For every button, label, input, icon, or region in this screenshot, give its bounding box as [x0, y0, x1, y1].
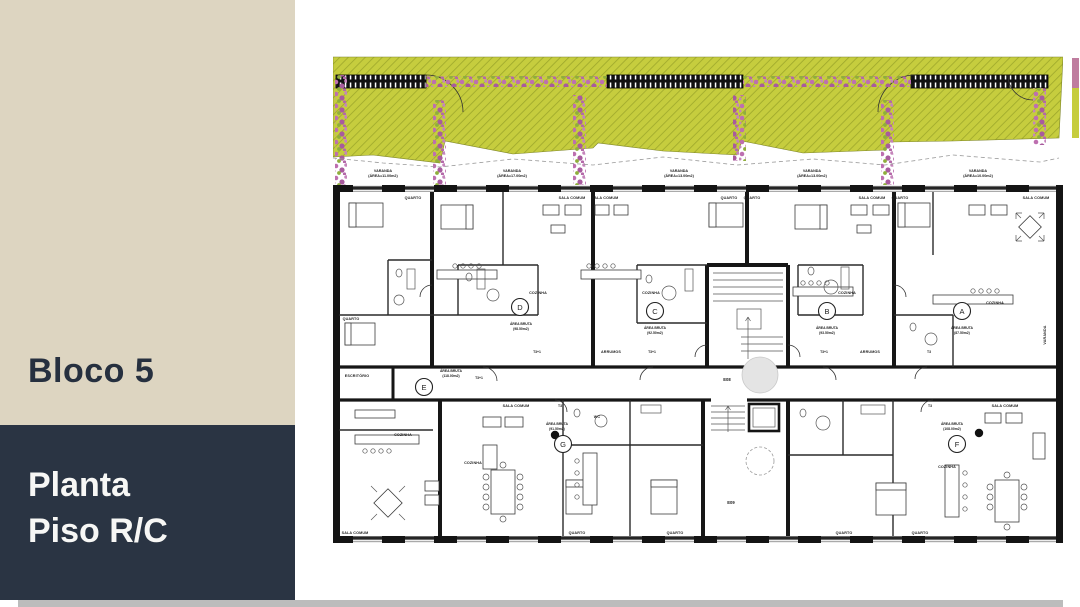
- floor-plan-drawing: VARANDA (ÁREA=11.00m2) VARANDA (ÁREA=17.…: [333, 55, 1063, 547]
- unit-marker-c: C ÁREA BRUTA (92.50m2) T3+1: [644, 303, 667, 355]
- stair-core: [711, 273, 783, 475]
- svg-text:C: C: [652, 307, 658, 316]
- svg-text:T3: T3: [927, 350, 931, 354]
- svg-text:(118.00m2): (118.00m2): [442, 374, 459, 378]
- garden-area: [333, 57, 1063, 188]
- svg-text:(ÁREA=11.00m2): (ÁREA=11.00m2): [368, 173, 398, 178]
- svg-text:ÁREA BRUTA: ÁREA BRUTA: [644, 325, 667, 330]
- svg-text:COZINHA: COZINHA: [838, 291, 856, 295]
- adjacent-garden-sliver: [1072, 58, 1079, 138]
- svg-text:(108.00m2): (108.00m2): [943, 427, 961, 431]
- flower-column: [335, 75, 347, 187]
- svg-text:VARANDA: VARANDA: [1043, 325, 1047, 344]
- svg-text:VARANDA: VARANDA: [803, 169, 821, 173]
- svg-text:QUARTO: QUARTO: [667, 531, 684, 535]
- svg-text:(ÁREA=13.00m2): (ÁREA=13.00m2): [797, 173, 827, 178]
- svg-text:SALA COMUM: SALA COMUM: [503, 404, 530, 408]
- unit-marker-g: G ÁREA BRUTA (91.50m2) T3: [546, 404, 572, 453]
- svg-text:E: E: [421, 383, 426, 392]
- svg-text:VARANDA: VARANDA: [670, 169, 688, 173]
- flower-column: [1033, 88, 1046, 145]
- svg-text:(91.50m2): (91.50m2): [549, 427, 565, 431]
- svg-text:(ÁREA=10.00m2): (ÁREA=10.00m2): [963, 173, 993, 178]
- unit-marker-d: D ÁREA BRUTA (98.50m2) T3+1: [510, 299, 541, 355]
- svg-text:ARRUMOS: ARRUMOS: [601, 350, 621, 354]
- svg-text:QUARTO: QUARTO: [912, 531, 929, 535]
- svg-text:T3+1: T3+1: [820, 350, 828, 354]
- bottom-gray-strip: [18, 600, 1063, 607]
- svg-text:COZINHA: COZINHA: [394, 433, 412, 437]
- svg-text:ÁREA BRUTA: ÁREA BRUTA: [941, 421, 964, 426]
- svg-text:A: A: [959, 307, 964, 316]
- kitchen-c: [581, 264, 641, 279]
- svg-text:ESCRITÓRIO: ESCRITÓRIO: [345, 373, 369, 378]
- svg-text:COZINHA: COZINHA: [529, 291, 547, 295]
- bed: [349, 203, 383, 227]
- flower-band: [426, 76, 607, 87]
- dining-table-a: [1016, 213, 1044, 241]
- svg-text:WC: WC: [594, 415, 601, 419]
- svg-text:ÁREA BRUTA: ÁREA BRUTA: [546, 421, 569, 426]
- svg-text:(ÁREA=17.00m2): (ÁREA=17.00m2): [497, 173, 527, 178]
- corridor-codes: E08 E09: [723, 377, 735, 505]
- flower-column: [733, 95, 746, 161]
- sofa-group: [543, 205, 1007, 233]
- svg-text:ÁREA BRUTA: ÁREA BRUTA: [510, 321, 533, 326]
- svg-text:SALA COMUM: SALA COMUM: [342, 531, 369, 535]
- svg-text:ÁREA BRUTA: ÁREA BRUTA: [440, 368, 463, 373]
- railing-segment: [607, 75, 743, 88]
- door-arcs: [420, 285, 933, 412]
- unit-marker-a: A ÁREA BRUTA (87.50m2) T3: [927, 303, 974, 355]
- svg-text:QUARTO: QUARTO: [892, 196, 909, 200]
- unit-marker-e: E ÁREA BRUTA (118.00m2) T3+1: [416, 368, 484, 396]
- svg-text:COZINHA: COZINHA: [464, 461, 482, 465]
- dining-table-g: [483, 462, 523, 522]
- floor-title-line2: Piso R/C: [28, 508, 168, 554]
- svg-text:T3: T3: [928, 404, 932, 408]
- svg-text:E09: E09: [727, 500, 735, 505]
- bed: [795, 205, 827, 229]
- svg-text:QUARTO: QUARTO: [836, 531, 853, 535]
- svg-text:COZINHA: COZINHA: [938, 465, 956, 469]
- railing-segment: [336, 75, 426, 88]
- svg-text:E08: E08: [723, 377, 731, 382]
- unit-marker-f: F ÁREA BRUTA (108.00m2) T3: [928, 404, 965, 453]
- bed: [441, 205, 473, 229]
- svg-text:VARANDA: VARANDA: [374, 169, 392, 173]
- svg-text:G: G: [560, 440, 566, 449]
- svg-text:QUARTO: QUARTO: [721, 196, 738, 200]
- bed: [876, 483, 906, 515]
- svg-text:VARANDA: VARANDA: [969, 169, 987, 173]
- bed: [345, 323, 375, 345]
- floor-title-line1: Planta: [28, 462, 168, 508]
- unit-marker-b: B ÁREA BRUTA (93.50m2) T3+1: [816, 303, 839, 355]
- svg-text:SALA COMUM: SALA COMUM: [859, 196, 886, 200]
- svg-text:QUARTO: QUARTO: [343, 317, 360, 321]
- svg-text:T3+1: T3+1: [648, 350, 656, 354]
- svg-text:SALA COMUM: SALA COMUM: [592, 196, 619, 200]
- kitchen-d: [437, 264, 497, 279]
- svg-text:SALA COMUM: SALA COMUM: [992, 404, 1019, 408]
- svg-text:F: F: [955, 440, 960, 449]
- flower-column: [573, 95, 586, 187]
- svg-text:(98.50m2): (98.50m2): [513, 327, 529, 331]
- block-title: Bloco 5: [28, 352, 154, 391]
- svg-text:(92.50m2): (92.50m2): [647, 331, 663, 335]
- svg-text:SALA COMUM: SALA COMUM: [559, 196, 586, 200]
- svg-text:SALA COMUM: SALA COMUM: [1023, 196, 1050, 200]
- bed: [709, 203, 743, 227]
- dining-table-f: [987, 472, 1027, 530]
- svg-text:(ÁREA=13.00m2): (ÁREA=13.00m2): [664, 173, 694, 178]
- column-dot: [975, 429, 983, 437]
- svg-text:COZINHA: COZINHA: [642, 291, 660, 295]
- dining-table-e: [371, 486, 405, 520]
- svg-text:QUARTO: QUARTO: [569, 531, 586, 535]
- svg-text:ARRUMOS: ARRUMOS: [860, 350, 880, 354]
- veranda-labels: VARANDA (ÁREA=11.00m2) VARANDA (ÁREA=17.…: [368, 169, 993, 178]
- patio-tree-dashed: [746, 447, 774, 475]
- svg-text:T3+1: T3+1: [533, 350, 541, 354]
- svg-text:ÁREA BRUTA: ÁREA BRUTA: [816, 325, 839, 330]
- svg-text:(93.50m2): (93.50m2): [819, 331, 835, 335]
- bed: [651, 480, 677, 514]
- svg-text:(87.50m2): (87.50m2): [954, 331, 970, 335]
- flower-column: [433, 100, 446, 188]
- svg-text:COZINHA: COZINHA: [986, 301, 1004, 305]
- svg-text:D: D: [517, 303, 523, 312]
- flower-band: [743, 76, 911, 87]
- corridor-tree: [742, 357, 778, 393]
- unit-markers: D ÁREA BRUTA (98.50m2) T3+1 C ÁREA BRUTA…: [416, 299, 974, 453]
- railing-segment: [911, 75, 1048, 88]
- svg-text:QUARTO: QUARTO: [744, 196, 761, 200]
- svg-text:T3: T3: [558, 404, 562, 408]
- kitchen-e-lower: [355, 410, 419, 453]
- kitchen-f-island: [945, 465, 967, 517]
- svg-text:B: B: [824, 307, 829, 316]
- svg-text:ÁREA BRUTA: ÁREA BRUTA: [951, 325, 974, 330]
- bed: [898, 203, 930, 227]
- svg-text:VARANDA: VARANDA: [503, 169, 521, 173]
- screenshot-root: Bloco 5 Planta Piso R/C: [0, 0, 1080, 607]
- flower-column: [881, 100, 894, 188]
- svg-text:QUARTO: QUARTO: [405, 196, 422, 200]
- svg-text:T3+1: T3+1: [475, 376, 483, 380]
- floor-title: Planta Piso R/C: [28, 462, 168, 554]
